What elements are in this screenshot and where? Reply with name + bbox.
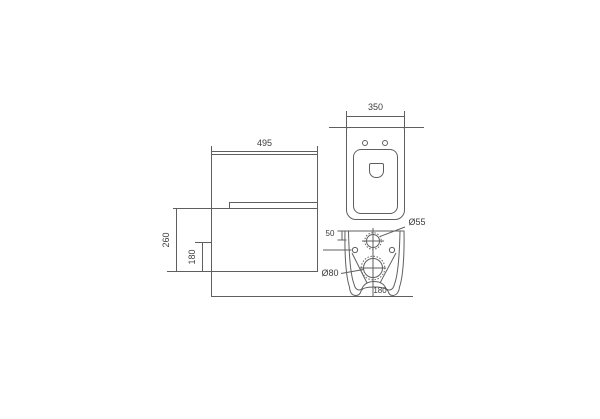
- fixing-hole-right: [389, 247, 394, 252]
- seat-bottom-line: [173, 208, 318, 209]
- side-body-outline: [211, 154, 318, 272]
- dim-label-outlet-diameter: Ø80: [318, 268, 342, 279]
- side-left-edge-extension: [211, 271, 212, 297]
- leader-dia80: [341, 270, 364, 274]
- top-bowl-rim: [353, 149, 398, 214]
- dim-label-width-top: 350: [346, 102, 405, 113]
- dim-350-ext-left: [346, 111, 347, 128]
- leader-dia55: [380, 227, 405, 237]
- flush-button-left: [362, 140, 368, 146]
- dim-180-line: [202, 242, 203, 272]
- dim-bottom-ext-line: [167, 271, 212, 272]
- dim-350-ext-right: [404, 111, 405, 128]
- dim-260-line: [176, 208, 177, 272]
- dim-label-inlet-diameter: Ø55: [404, 217, 430, 228]
- seat-top-line: [229, 202, 318, 203]
- technical-drawing-canvas: 495 260 180 350: [0, 0, 600, 419]
- dim-label-height-side: 260: [161, 210, 173, 270]
- dim-label-outlet-height-back: 180: [371, 286, 389, 295]
- dim-495-line: [211, 151, 318, 152]
- top-drain-outline: [369, 163, 384, 178]
- fixing-hole-left: [352, 247, 357, 252]
- flush-button-right: [382, 140, 388, 146]
- dim-label-inlet-offset: 50: [322, 229, 338, 238]
- dim-350-line: [346, 116, 405, 117]
- dim-label-width-side: 495: [211, 138, 318, 149]
